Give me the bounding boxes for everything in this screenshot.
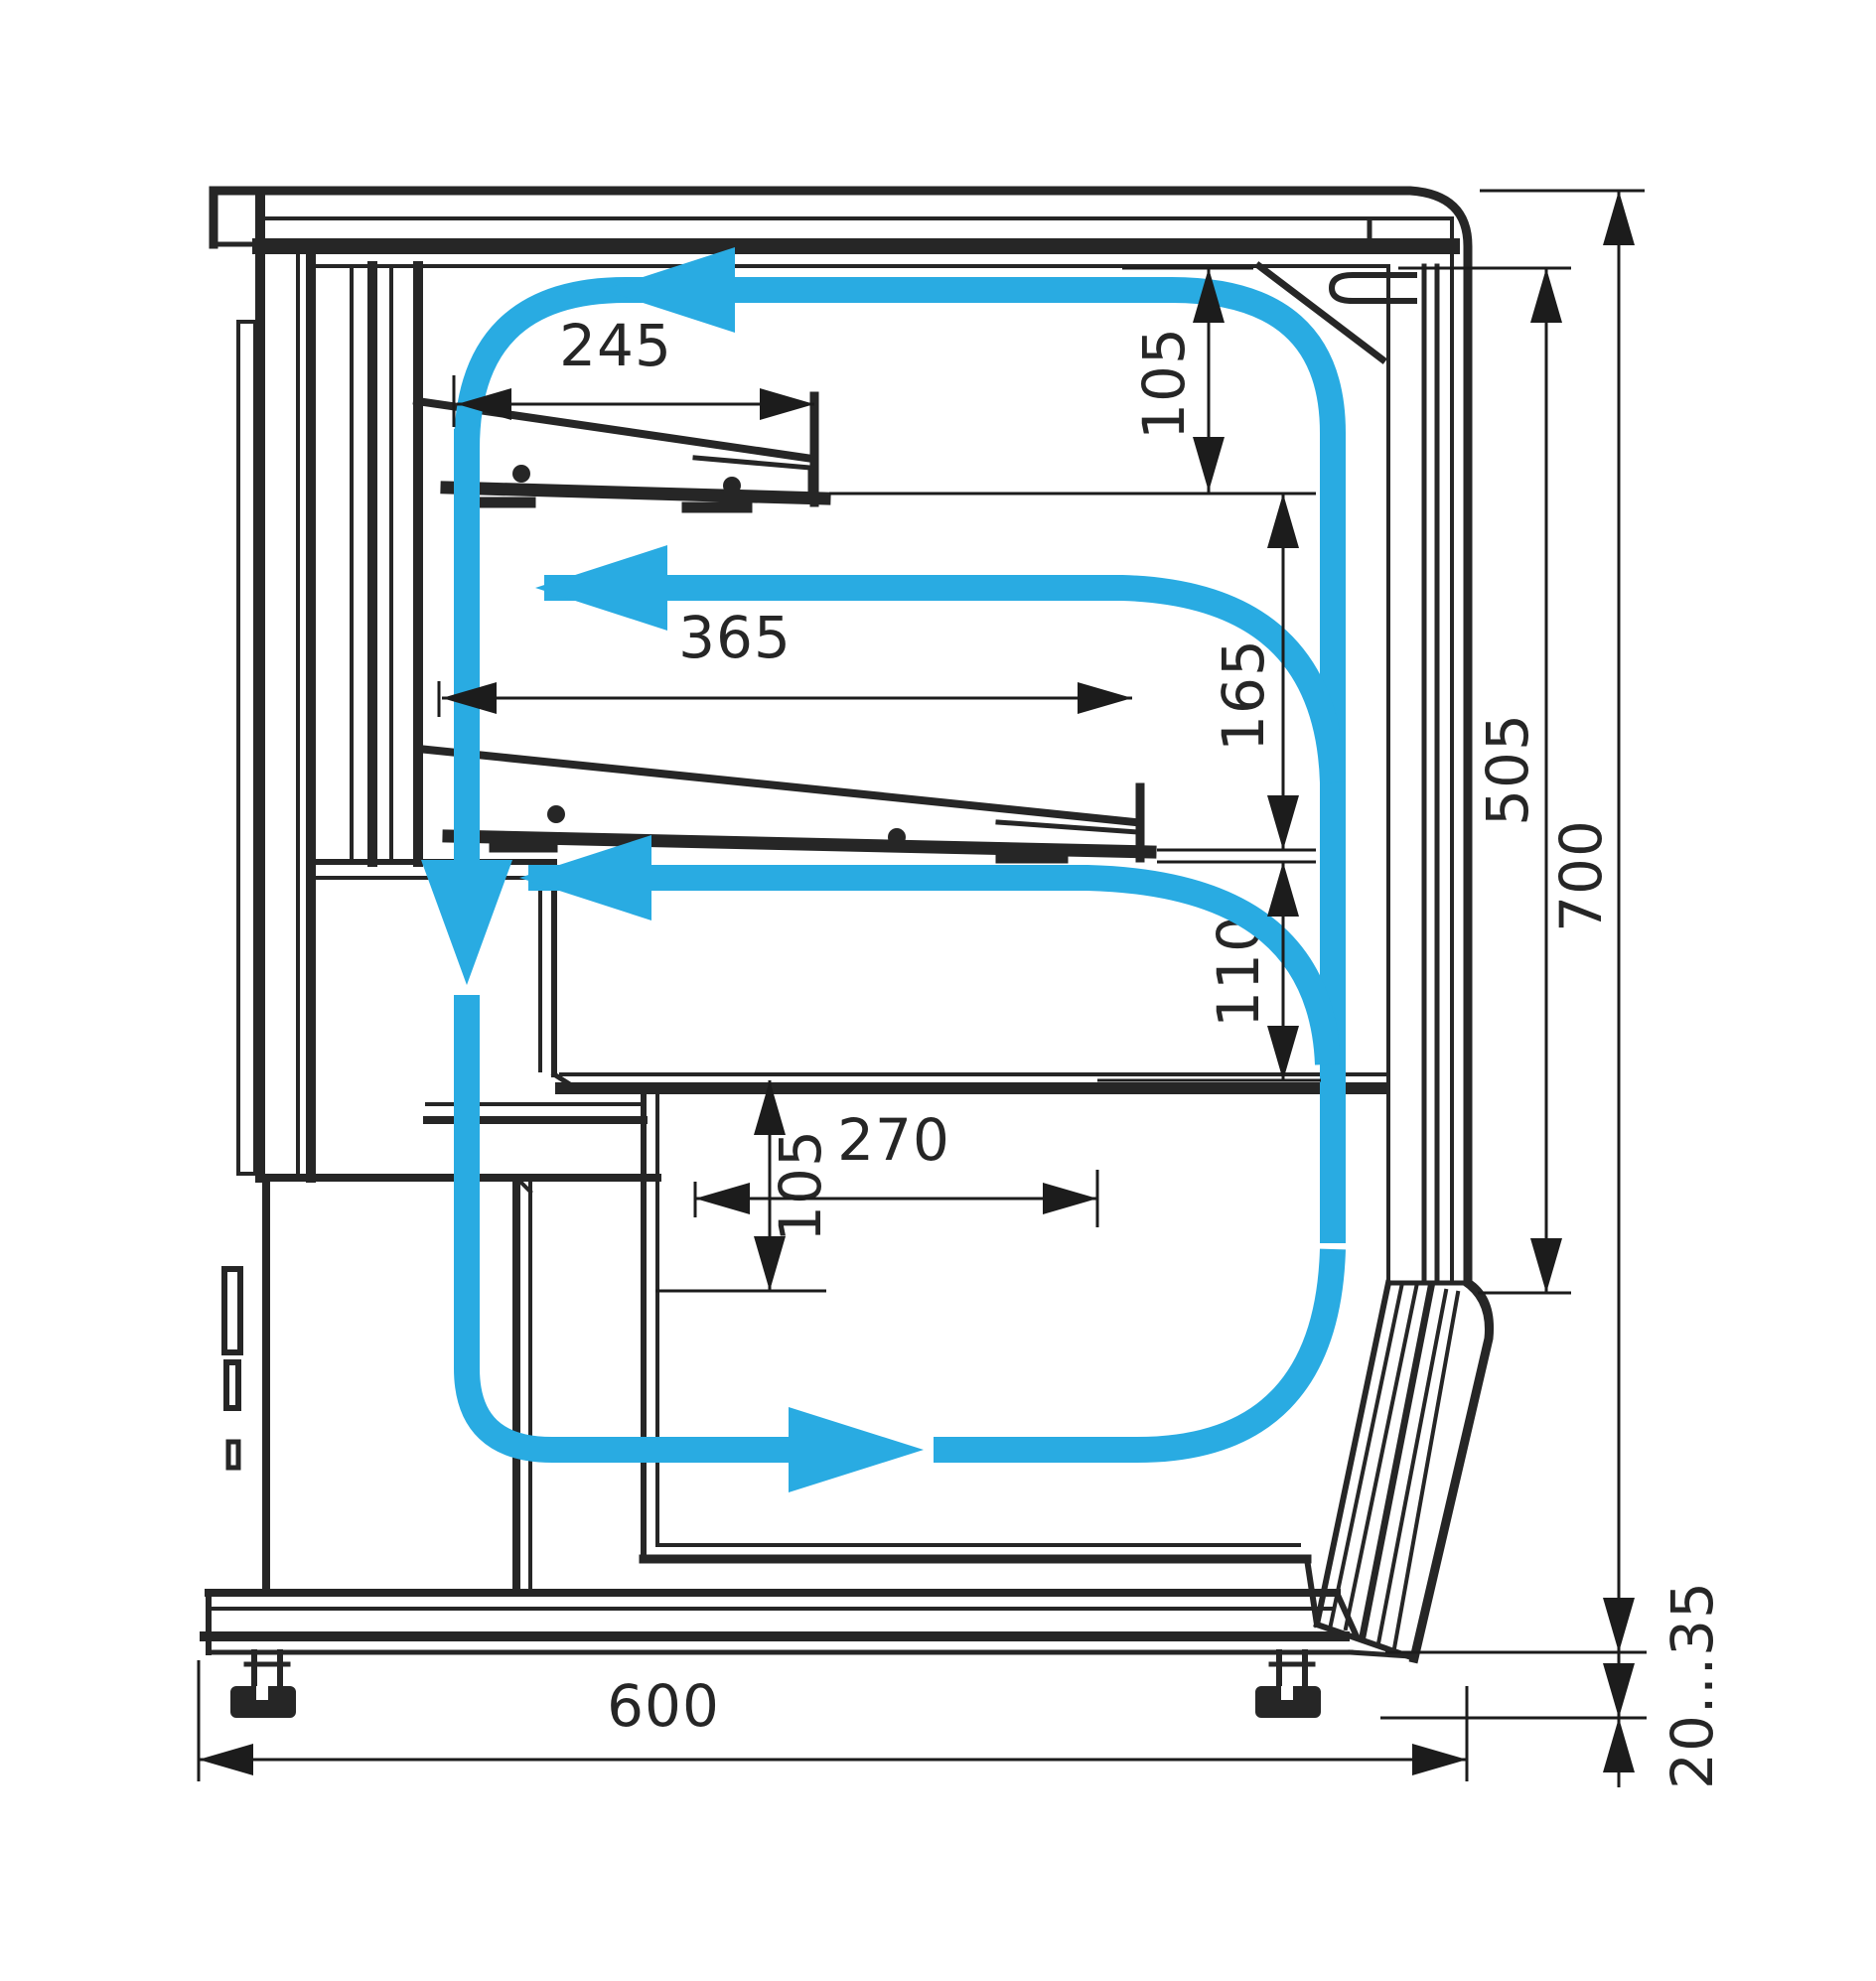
machine-compartment <box>224 1178 657 1593</box>
dim-label-365: 365 <box>678 604 792 671</box>
shelf-bolt <box>888 828 906 846</box>
front-glass <box>1259 218 1468 1283</box>
dim-label-700: 700 <box>1547 819 1615 932</box>
technical-drawing-page: 110 245 105 <box>0 0 1876 1981</box>
dim-label-105-lower: 105 <box>767 1129 834 1242</box>
base <box>205 1593 1410 1656</box>
airflow-arrow-left-middle <box>535 545 667 631</box>
dim-label-270: 270 <box>837 1106 950 1174</box>
rear-knob <box>228 1442 238 1468</box>
airflow-arrow-right-bottom <box>789 1407 924 1492</box>
airflow-bottom-right <box>934 1249 1333 1450</box>
adjustable-foot-left <box>230 1652 296 1718</box>
dimension-deck-depth: 270 <box>695 1106 1097 1227</box>
dim-label-20-35: 20...35 <box>1659 1581 1726 1789</box>
shelf-bolt <box>512 465 530 483</box>
airflow-arrow-down <box>421 860 512 985</box>
rear-hinge <box>224 1269 240 1352</box>
shelf-middle <box>418 749 1150 858</box>
dim-label-505: 505 <box>1474 713 1541 826</box>
air-grille-slot <box>1332 275 1414 301</box>
shelf-bolt <box>547 805 565 823</box>
adjustable-foot-right <box>1255 1652 1321 1718</box>
dimension-middle-shelf-depth: 365 <box>439 604 1132 717</box>
shelf-bolt <box>723 477 741 495</box>
dim-label-105-top: 105 <box>1130 327 1198 440</box>
dim-label-245: 245 <box>559 312 672 379</box>
refrigerated-case-cross-section: 110 245 105 <box>0 0 1876 1981</box>
dimension-overall-height: 700 <box>1480 191 1645 1787</box>
rear-wall <box>238 199 418 1178</box>
dim-label-600: 600 <box>607 1672 720 1740</box>
dimensions: 245 105 365 165 <box>199 191 1726 1789</box>
basin <box>644 1088 1317 1625</box>
dim-label-165: 165 <box>1210 638 1277 752</box>
rear-hinge <box>226 1362 238 1408</box>
